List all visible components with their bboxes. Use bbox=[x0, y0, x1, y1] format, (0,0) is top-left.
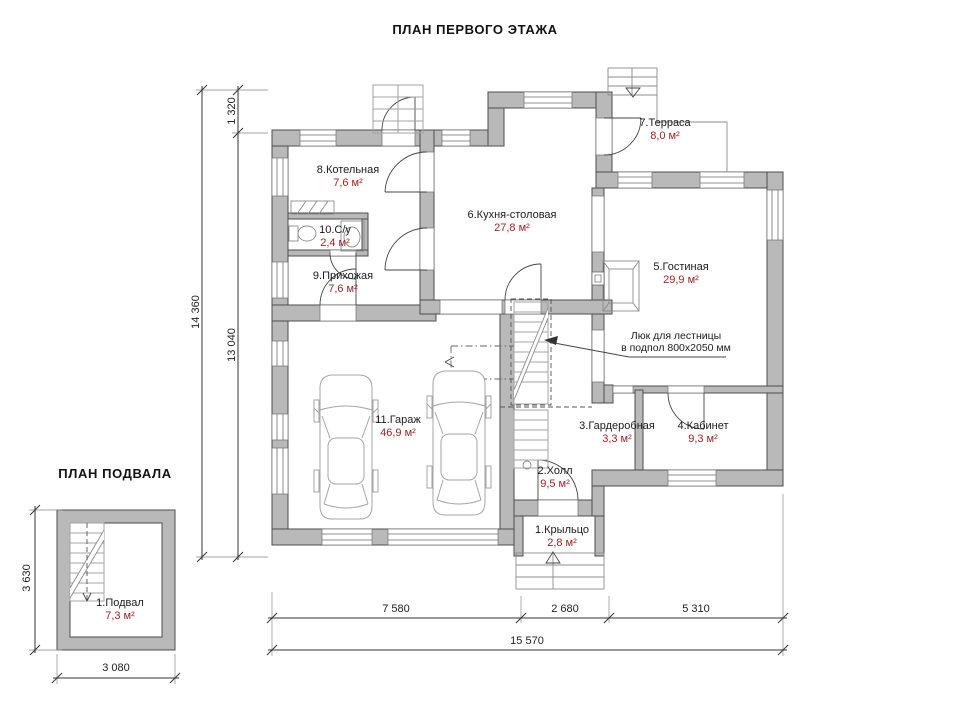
room-area: 2,8 м² bbox=[535, 537, 589, 550]
hatch-annotation-line2: в подпол 800х2050 мм bbox=[621, 343, 731, 355]
dim-label-height-top: 1 320 bbox=[226, 97, 238, 125]
room-area: 7,3 м² bbox=[96, 610, 144, 623]
dim-label-height-main: 13 040 bbox=[226, 328, 238, 362]
room-label-garazh: 11.Гараж 46,9 м² bbox=[375, 414, 421, 440]
room-area: 2,4 м² bbox=[319, 237, 351, 250]
room-area: 8,0 м² bbox=[639, 130, 690, 143]
room-name: 1.Подвал bbox=[96, 597, 144, 609]
room-name: 9.Прихожая bbox=[313, 270, 373, 282]
room-name: 2.Холл bbox=[537, 465, 572, 477]
garage-cars bbox=[314, 371, 491, 519]
room-name: 3.Гардеробная bbox=[579, 420, 655, 432]
room-label-prihozhaya: 9.Прихожая 7,6 м² bbox=[313, 270, 373, 296]
room-name: 4.Кабинет bbox=[677, 420, 728, 432]
floor-plan-canvas: ПЛАН ПЕРВОГО ЭТАЖА ПЛАН ПОДВАЛА 1.Крыльц… bbox=[0, 0, 956, 717]
room-area: 9,3 м² bbox=[677, 433, 728, 446]
room-name: 11.Гараж bbox=[375, 414, 421, 426]
room-name: 5.Гостиная bbox=[653, 261, 708, 273]
room-label-gostinaya: 5.Гостиная 29,9 м² bbox=[653, 261, 708, 287]
room-area: 27,8 м² bbox=[467, 222, 556, 235]
room-area: 7,6 м² bbox=[317, 177, 379, 190]
room-label-kabinet: 4.Кабинет 9,3 м² bbox=[677, 420, 728, 446]
room-name: 8.Котельная bbox=[317, 164, 379, 176]
room-label-su: 10.С/у 2,4 м² bbox=[319, 224, 351, 250]
porch-steps bbox=[516, 552, 604, 589]
room-name: 6.Кухня-столовая bbox=[467, 209, 556, 221]
entry-stairs bbox=[373, 85, 423, 133]
dim-label-width-seg1: 7 580 bbox=[382, 603, 410, 615]
dim-label-basement-width: 3 080 bbox=[102, 662, 130, 674]
dim-label-width-seg3: 5 310 bbox=[682, 603, 710, 615]
room-name: 7.Терраса bbox=[639, 117, 690, 129]
room-label-terrasa: 7.Терраса 8,0 м² bbox=[639, 117, 690, 143]
toilet-icon bbox=[289, 226, 298, 241]
dim-label-width-total: 15 570 bbox=[510, 635, 544, 647]
hatch-annotation-line1: Люк для лестницы bbox=[621, 331, 731, 343]
room-name: 10.С/у bbox=[319, 224, 351, 236]
room-name: 1.Крыльцо bbox=[535, 524, 589, 536]
basement-structure bbox=[57, 510, 175, 650]
room-label-krylco: 1.Крыльцо 2,8 м² bbox=[535, 524, 589, 550]
room-area: 46,9 м² bbox=[375, 427, 421, 440]
dim-label-basement-height: 3 630 bbox=[21, 564, 33, 592]
room-label-kuhnya-stolovaya: 6.Кухня-столовая 27,8 м² bbox=[467, 209, 556, 235]
room-area: 7,6 м² bbox=[313, 283, 373, 296]
room-label-kotelnaya: 8.Котельная 7,6 м² bbox=[317, 164, 379, 190]
car-left bbox=[314, 375, 378, 519]
car-right bbox=[427, 371, 491, 515]
room-area: 29,9 м² bbox=[653, 274, 708, 287]
first-floor-title: ПЛАН ПЕРВОГО ЭТАЖА bbox=[392, 22, 557, 37]
dim-label-width-seg2: 2 680 bbox=[551, 603, 579, 615]
room-area: 3,3 м² bbox=[579, 433, 655, 446]
room-label-garderobnaya: 3.Гардеробная 3,3 м² bbox=[579, 420, 655, 446]
basement-title: ПЛАН ПОДВАЛА bbox=[58, 466, 171, 481]
hatch-annotation: Люк для лестницы в подпол 800х2050 мм bbox=[621, 331, 731, 354]
room-area: 9,5 м² bbox=[537, 478, 572, 491]
dim-label-height-total: 14 360 bbox=[190, 295, 202, 329]
room-label-holl: 2.Холл 9,5 м² bbox=[537, 465, 572, 491]
room-label-podval: 1.Подвал 7,3 м² bbox=[96, 597, 144, 623]
